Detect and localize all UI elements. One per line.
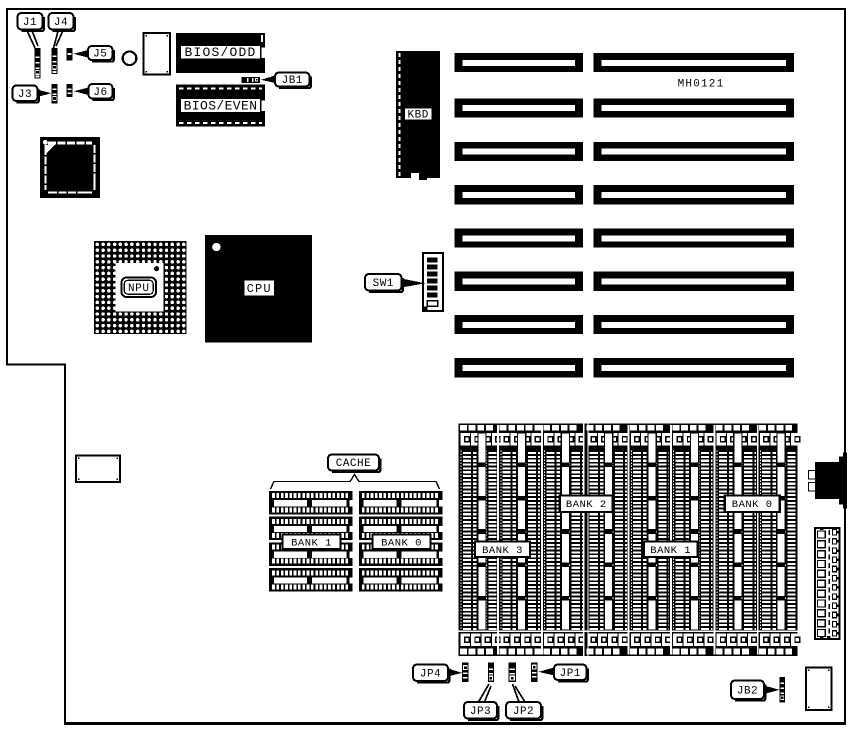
svg-text:CACHE: CACHE	[336, 458, 372, 470]
svg-text:JB2: JB2	[737, 685, 758, 697]
svg-text:JB1: JB1	[282, 75, 303, 87]
svg-text:J1: J1	[23, 17, 37, 29]
svg-text:BANK 0: BANK 0	[732, 499, 773, 511]
svg-text:JP2: JP2	[513, 706, 534, 718]
svg-text:JP1: JP1	[560, 668, 581, 680]
svg-text:BIOS/ODD: BIOS/ODD	[184, 45, 256, 60]
svg-text:J3: J3	[18, 89, 32, 101]
svg-text:CPU: CPU	[247, 282, 272, 296]
svg-text:BANK 1: BANK 1	[291, 537, 332, 549]
svg-text:MH0121: MH0121	[678, 78, 725, 90]
svg-text:BANK 2: BANK 2	[566, 499, 607, 511]
svg-text:BANK 0: BANK 0	[381, 537, 422, 549]
svg-text:J5: J5	[93, 49, 107, 61]
svg-text:BANK 3: BANK 3	[482, 545, 523, 557]
svg-text:JP4: JP4	[420, 668, 441, 680]
svg-text:BIOS/EVEN: BIOS/EVEN	[184, 99, 258, 114]
svg-text:JP3: JP3	[470, 706, 491, 718]
svg-text:J4: J4	[54, 17, 68, 29]
svg-text:NPU: NPU	[128, 283, 150, 295]
svg-text:KBD: KBD	[408, 110, 429, 122]
svg-text:J6: J6	[93, 87, 107, 99]
svg-text:BANK 1: BANK 1	[650, 545, 691, 557]
svg-text:SW1: SW1	[373, 278, 394, 290]
